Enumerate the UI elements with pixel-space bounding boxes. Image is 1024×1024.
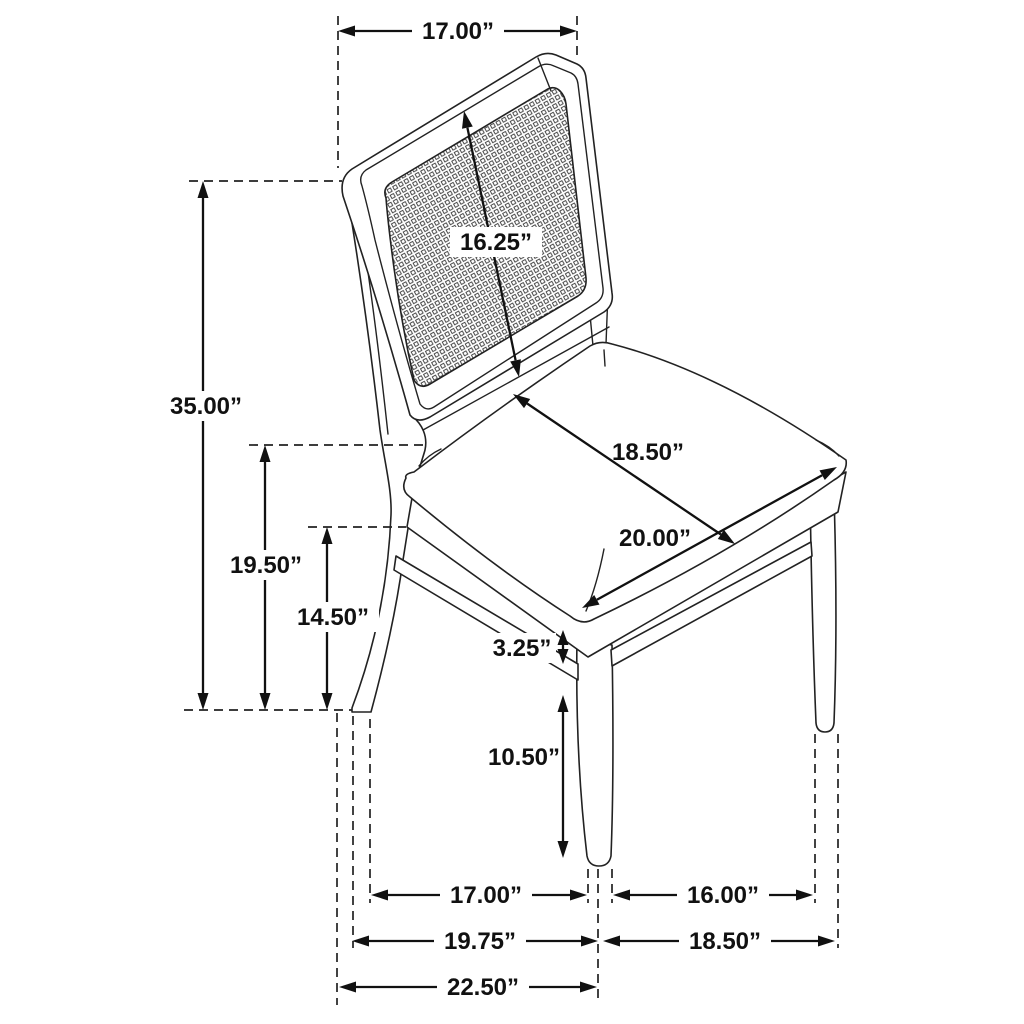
dim-stretcher-floor-clearance: 10.50” xyxy=(486,695,569,858)
dim-base-depth-to-front-leg: 19.75” xyxy=(352,926,598,956)
dim-label: 17.00” xyxy=(422,18,494,45)
dim-label: 19.75” xyxy=(444,928,516,955)
dim-label: 3.25” xyxy=(493,635,552,662)
dim-base-front-width: 18.50” xyxy=(603,926,835,956)
dim-label: 19.50” xyxy=(230,552,302,579)
arrowhead-left xyxy=(338,26,355,37)
arrowhead-bottom xyxy=(558,841,569,858)
arrowhead-left xyxy=(352,936,369,947)
arrowhead-left xyxy=(613,890,630,901)
cushion-crease-back xyxy=(604,350,605,366)
arrowhead-right xyxy=(560,26,577,37)
arrowhead-left xyxy=(339,982,356,993)
arrowhead-right xyxy=(581,936,598,947)
arrowhead-bottom xyxy=(322,693,333,710)
chair-dimension-diagram: 17.00” 16.25” 35.00” 19.50” xyxy=(0,0,1024,1024)
arrowhead-right xyxy=(818,936,835,947)
dim-label: 16.00” xyxy=(687,882,759,909)
arrowhead-top xyxy=(558,695,569,712)
front-left-leg xyxy=(577,638,613,866)
arrowhead-bottom xyxy=(260,693,271,710)
arrowhead-right xyxy=(796,890,813,901)
dim-label: 16.25” xyxy=(460,229,532,256)
arrowhead-top xyxy=(322,527,333,544)
arrowhead-right xyxy=(580,982,597,993)
dim-label: 35.00” xyxy=(170,393,242,420)
dim-label: 20.00” xyxy=(619,525,691,552)
chair-drawing xyxy=(342,53,846,866)
dim-label: 14.50” xyxy=(297,604,369,631)
dim-side-leg-spacing: 17.00” xyxy=(371,880,587,910)
dim-label: 18.50” xyxy=(612,439,684,466)
dim-label: 10.50” xyxy=(488,744,560,771)
dim-label: 18.50” xyxy=(689,928,761,955)
arrowhead-left xyxy=(603,936,620,947)
dim-base-overall-depth: 22.50” xyxy=(339,972,597,1002)
arrowhead-bottom xyxy=(198,693,209,710)
dim-label: 22.50” xyxy=(447,974,519,1001)
arrowhead-right xyxy=(570,890,587,901)
dim-label: 17.00” xyxy=(450,882,522,909)
diagram-canvas: 17.00” 16.25” 35.00” 19.50” xyxy=(0,0,1024,1024)
arrowhead-top xyxy=(198,181,209,198)
arrowhead-left xyxy=(371,890,388,901)
arrowhead-top xyxy=(260,445,271,462)
dim-front-leg-spacing: 16.00” xyxy=(613,880,813,910)
